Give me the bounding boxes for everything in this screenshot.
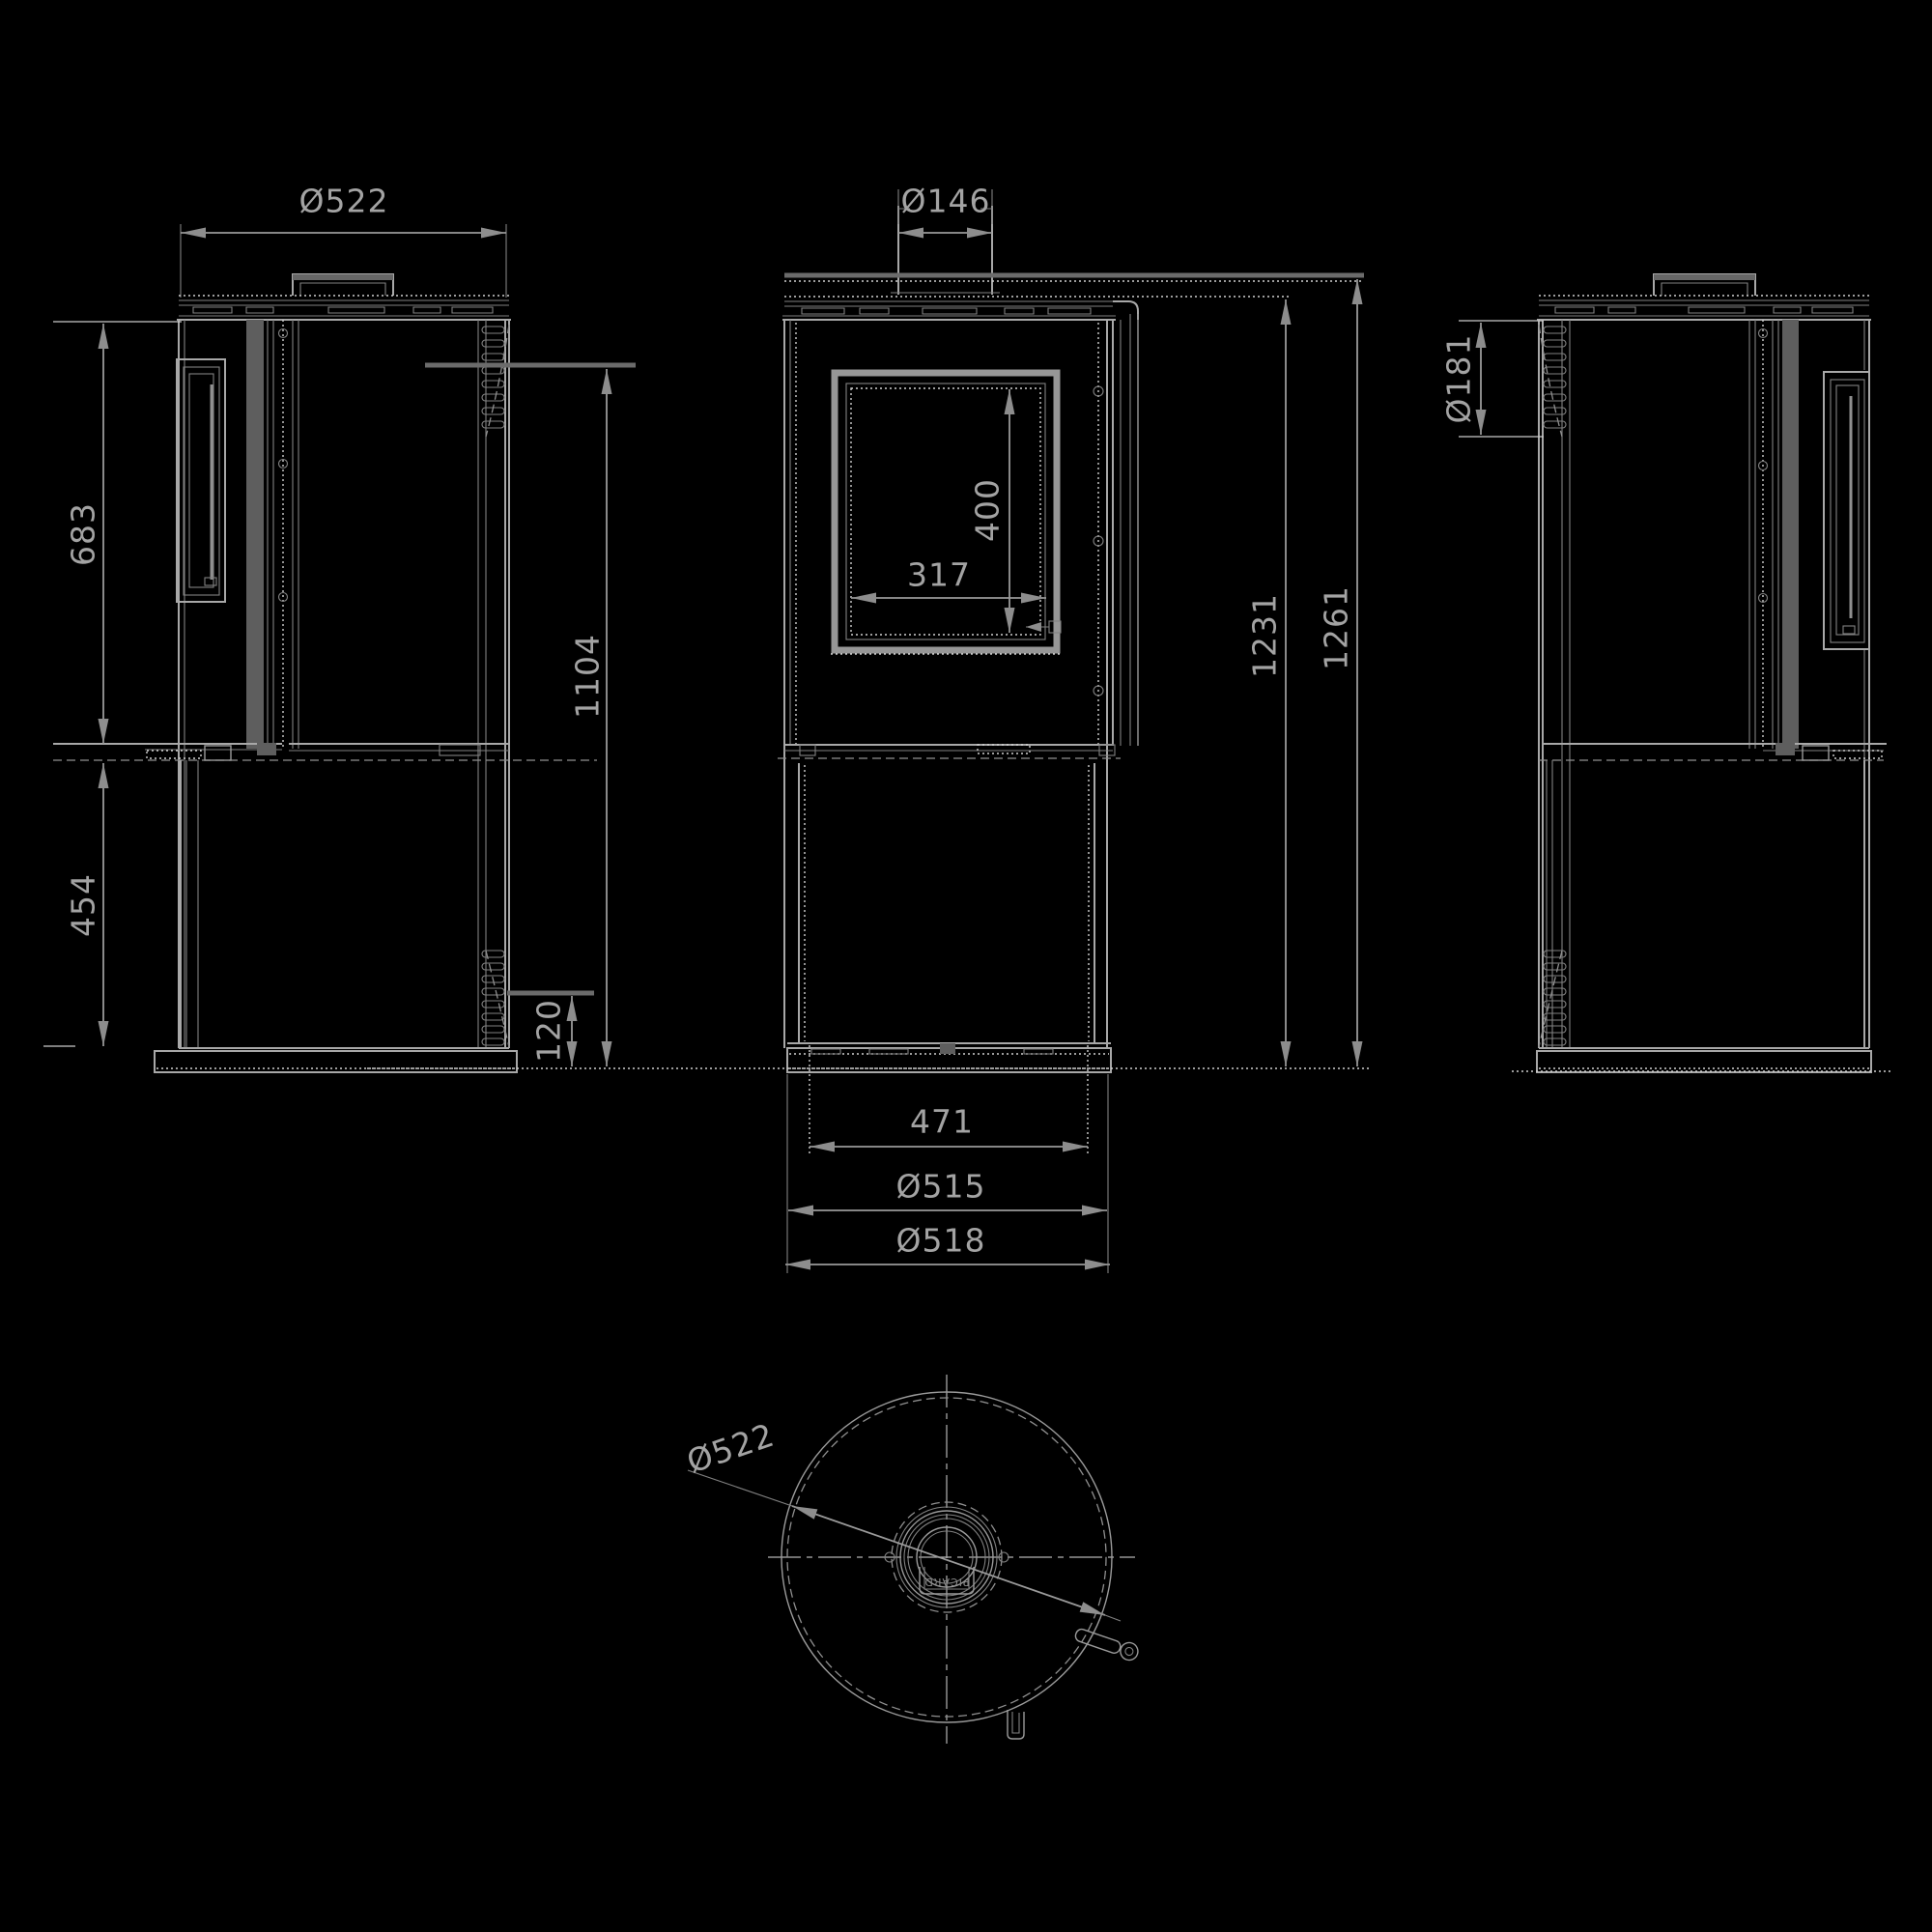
dim-rear-channel: Ø181 [1440, 321, 1545, 437]
dim-left-base: 120 [507, 993, 594, 1066]
lower-body-right [1547, 760, 1864, 1048]
dim-left-lower: 454 [43, 763, 103, 1046]
mid-ledge-left [53, 743, 597, 760]
plan-channel-detail [1008, 1710, 1024, 1739]
dim-plan-diameter: Ø522 [682, 1416, 1121, 1621]
front-view: Ø146 4 [778, 183, 1364, 1274]
base-left [155, 1048, 517, 1072]
left-side-view: Ø522 [43, 183, 636, 1073]
dim-label-left-base: 120 [530, 999, 568, 1063]
dim-label-left-width: Ø522 [299, 183, 389, 220]
dim-base-inner-width: 471 [810, 1045, 1088, 1155]
body-outline-left [179, 320, 509, 1048]
mid-ledge-right [1539, 743, 1887, 760]
dim-label-height-to-top-plate: 1231 [1246, 593, 1284, 678]
top-plate-front [782, 275, 1364, 320]
dim-label-left-lower: 454 [65, 873, 102, 937]
dim-flue-diameter: Ø146 [898, 183, 992, 234]
dim-glass-width: 317 [851, 556, 1046, 599]
dim-left-overall: 1104 [425, 365, 636, 1066]
dim-label-outer-diameter: Ø518 [896, 1222, 986, 1260]
technical-drawing: Ø522 [0, 0, 1932, 1932]
drawing-canvas: Ø522 [0, 0, 1932, 1932]
door-window [831, 373, 1061, 654]
dim-height-to-top-plate: 1231 [1246, 299, 1287, 1066]
dim-label-rear-channel: Ø181 [1440, 334, 1478, 424]
plan-centerlines [768, 1375, 1135, 1744]
stove-handle-side [293, 274, 393, 296]
pedestal-front [799, 763, 1094, 1043]
lower-body-left [181, 760, 198, 1048]
mid-ledge-front [778, 745, 1121, 758]
dim-glass-height: 400 [969, 389, 1010, 633]
side-glass-left [177, 359, 225, 602]
door-hinge-right [1749, 320, 1799, 749]
dim-label-plan-diameter: Ø522 [682, 1416, 780, 1481]
dim-left-width: Ø522 [181, 183, 506, 298]
dim-label-left-overall: 1104 [569, 634, 607, 719]
dim-label-body-diameter: Ø515 [896, 1168, 986, 1206]
dim-label-height-overall: 1261 [1318, 585, 1355, 670]
top-plate-left [177, 296, 511, 320]
stove-handle-right [1654, 274, 1755, 296]
dim-left-upper: 683 [53, 322, 182, 744]
side-glass-right [1824, 372, 1869, 649]
dim-label-flue-diameter: Ø146 [901, 183, 991, 220]
right-side-view: Ø181 [1440, 274, 1892, 1072]
dim-label-glass-height: 400 [969, 478, 1007, 542]
body-outline-right [1539, 320, 1869, 1048]
door-hinge-left [246, 320, 298, 749]
dim-label-glass-width: 317 [907, 556, 971, 594]
plan-view: PICARD Ø522 [682, 1375, 1140, 1744]
dim-height-overall: 1261 [1318, 279, 1358, 1066]
brand-mark: PICARD [923, 1576, 969, 1588]
plan-door-handle [1073, 1625, 1140, 1662]
base-right [1512, 1048, 1891, 1072]
top-plate-right [1537, 296, 1871, 320]
dim-outer-diameter: Ø518 [785, 1222, 1110, 1265]
dim-label-base-inner-width: 471 [910, 1103, 974, 1141]
dim-label-left-upper: 683 [65, 502, 102, 566]
